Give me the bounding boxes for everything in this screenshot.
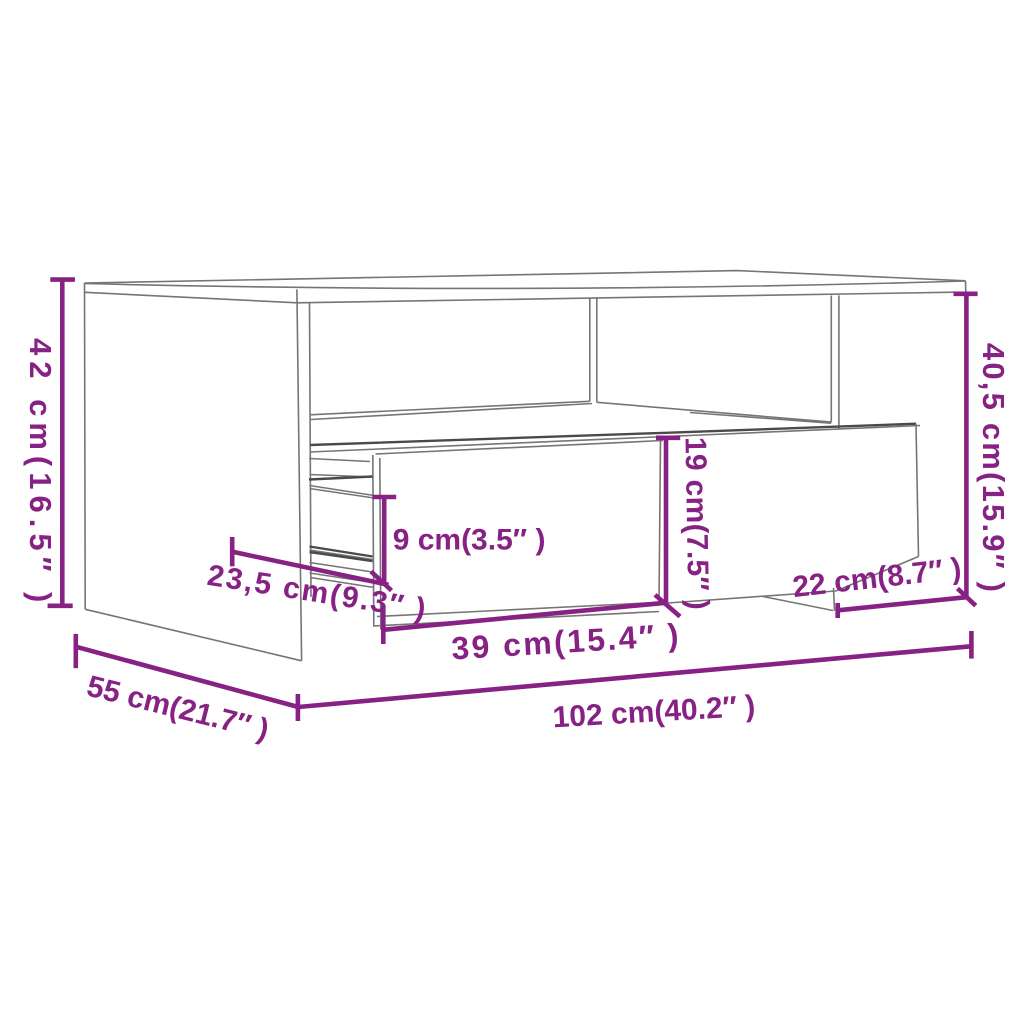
svg-text:39 cm(15.4″ ): 39 cm(15.4″ ) (450, 617, 682, 667)
svg-text:102 cm(40.2″ ): 102 cm(40.2″ ) (552, 690, 756, 735)
svg-text:55 cm(21.7″ ): 55 cm(21.7″ ) (84, 670, 273, 747)
svg-text:19 cm(7.5″ ): 19 cm(7.5″ ) (678, 437, 714, 611)
svg-text:22 cm(8.7″ ): 22 cm(8.7″ ) (791, 552, 963, 604)
svg-text:40,5 cm(15.9″ ): 40,5 cm(15.9″ ) (976, 343, 1011, 594)
svg-text:42 cm(16.5″ ): 42 cm(16.5″ ) (23, 338, 58, 608)
svg-text:9 cm(3.5″ ): 9 cm(3.5″ ) (393, 523, 546, 556)
